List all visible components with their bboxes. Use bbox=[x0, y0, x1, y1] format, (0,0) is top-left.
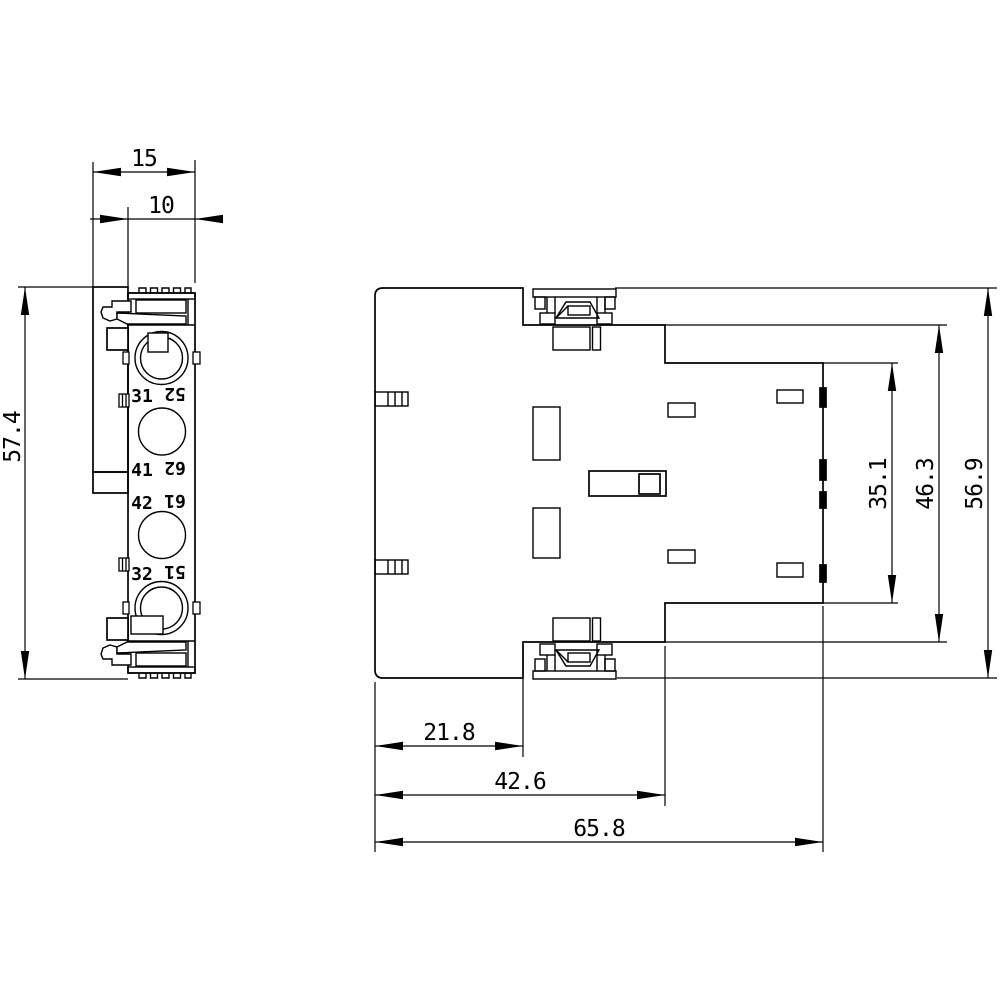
front-window bbox=[593, 327, 601, 350]
side-bottom-latch bbox=[101, 641, 195, 678]
terminal-label-42: 42 bbox=[131, 493, 153, 514]
front-view bbox=[375, 288, 826, 679]
front-ribbed-tab-top bbox=[375, 392, 408, 406]
dim-label-42-6: 42.6 bbox=[494, 769, 546, 795]
dim-label-46-3: 46.3 bbox=[913, 458, 939, 510]
front-window bbox=[593, 618, 601, 641]
terminal-label-51: 51 bbox=[164, 561, 186, 582]
front-slot bbox=[777, 390, 803, 403]
dim-label-10: 10 bbox=[148, 193, 174, 219]
front-bottom-latch bbox=[533, 644, 616, 679]
dimension-step-height: 46.3 bbox=[665, 325, 947, 642]
terminal-screw bbox=[139, 512, 186, 559]
front-slot bbox=[533, 508, 560, 558]
terminal-screw bbox=[139, 408, 186, 455]
front-window bbox=[553, 327, 590, 350]
dim-label-15: 15 bbox=[131, 146, 157, 172]
front-slot bbox=[668, 403, 695, 417]
side-view bbox=[93, 287, 200, 678]
dimension-inner-height: 35.1 bbox=[823, 363, 898, 603]
front-edge-tick bbox=[820, 460, 826, 480]
front-outline bbox=[375, 288, 823, 678]
dimension-width-body: 10 bbox=[90, 193, 223, 287]
side-tab bbox=[193, 602, 200, 614]
front-edge-tick bbox=[820, 388, 826, 407]
dimension-left-step: 21.8 bbox=[375, 646, 523, 852]
side-tab bbox=[123, 602, 129, 614]
terminal-label-62: 62 bbox=[164, 457, 186, 478]
front-slot bbox=[668, 550, 695, 563]
side-tab bbox=[123, 352, 129, 364]
terminal-label-32: 32 bbox=[131, 564, 153, 585]
front-top-latch bbox=[533, 289, 616, 324]
terminal-label-31: 31 bbox=[131, 386, 153, 407]
side-top-latch bbox=[101, 288, 195, 325]
front-ribbed-tab-bottom bbox=[375, 560, 408, 574]
side-lug-bottom bbox=[107, 618, 128, 640]
side-ribbed-tab-top bbox=[119, 394, 129, 407]
side-lug-top bbox=[107, 328, 128, 350]
front-slot bbox=[777, 563, 803, 577]
dim-label-35-1: 35.1 bbox=[866, 458, 892, 510]
side-ribbed-tab-bottom bbox=[119, 558, 129, 571]
front-window bbox=[553, 618, 590, 641]
side-tab bbox=[193, 352, 200, 364]
front-edge-tick bbox=[820, 565, 826, 582]
front-slider bbox=[589, 471, 666, 496]
dim-label-56-9: 56.9 bbox=[962, 458, 988, 510]
terminal-label-41: 41 bbox=[131, 460, 153, 481]
dim-label-65-8: 65.8 bbox=[573, 816, 625, 842]
terminal-label-52: 52 bbox=[164, 383, 186, 404]
front-slot bbox=[533, 407, 560, 460]
dimension-mid-step: 42.6 bbox=[375, 646, 665, 806]
dim-label-21-8: 21.8 bbox=[423, 720, 475, 746]
screw-notch bbox=[148, 333, 168, 352]
terminal-label-61: 61 bbox=[164, 490, 186, 511]
dimension-drawing: 31 52 41 62 42 61 32 51 bbox=[0, 0, 1000, 1000]
dim-label-57-4: 57.4 bbox=[0, 411, 26, 463]
technical-drawing-page: 31 52 41 62 42 61 32 51 bbox=[0, 0, 1000, 1000]
screw-notch bbox=[131, 616, 163, 634]
side-mounting-plate-foot bbox=[93, 472, 128, 493]
front-edge-tick bbox=[820, 492, 826, 508]
